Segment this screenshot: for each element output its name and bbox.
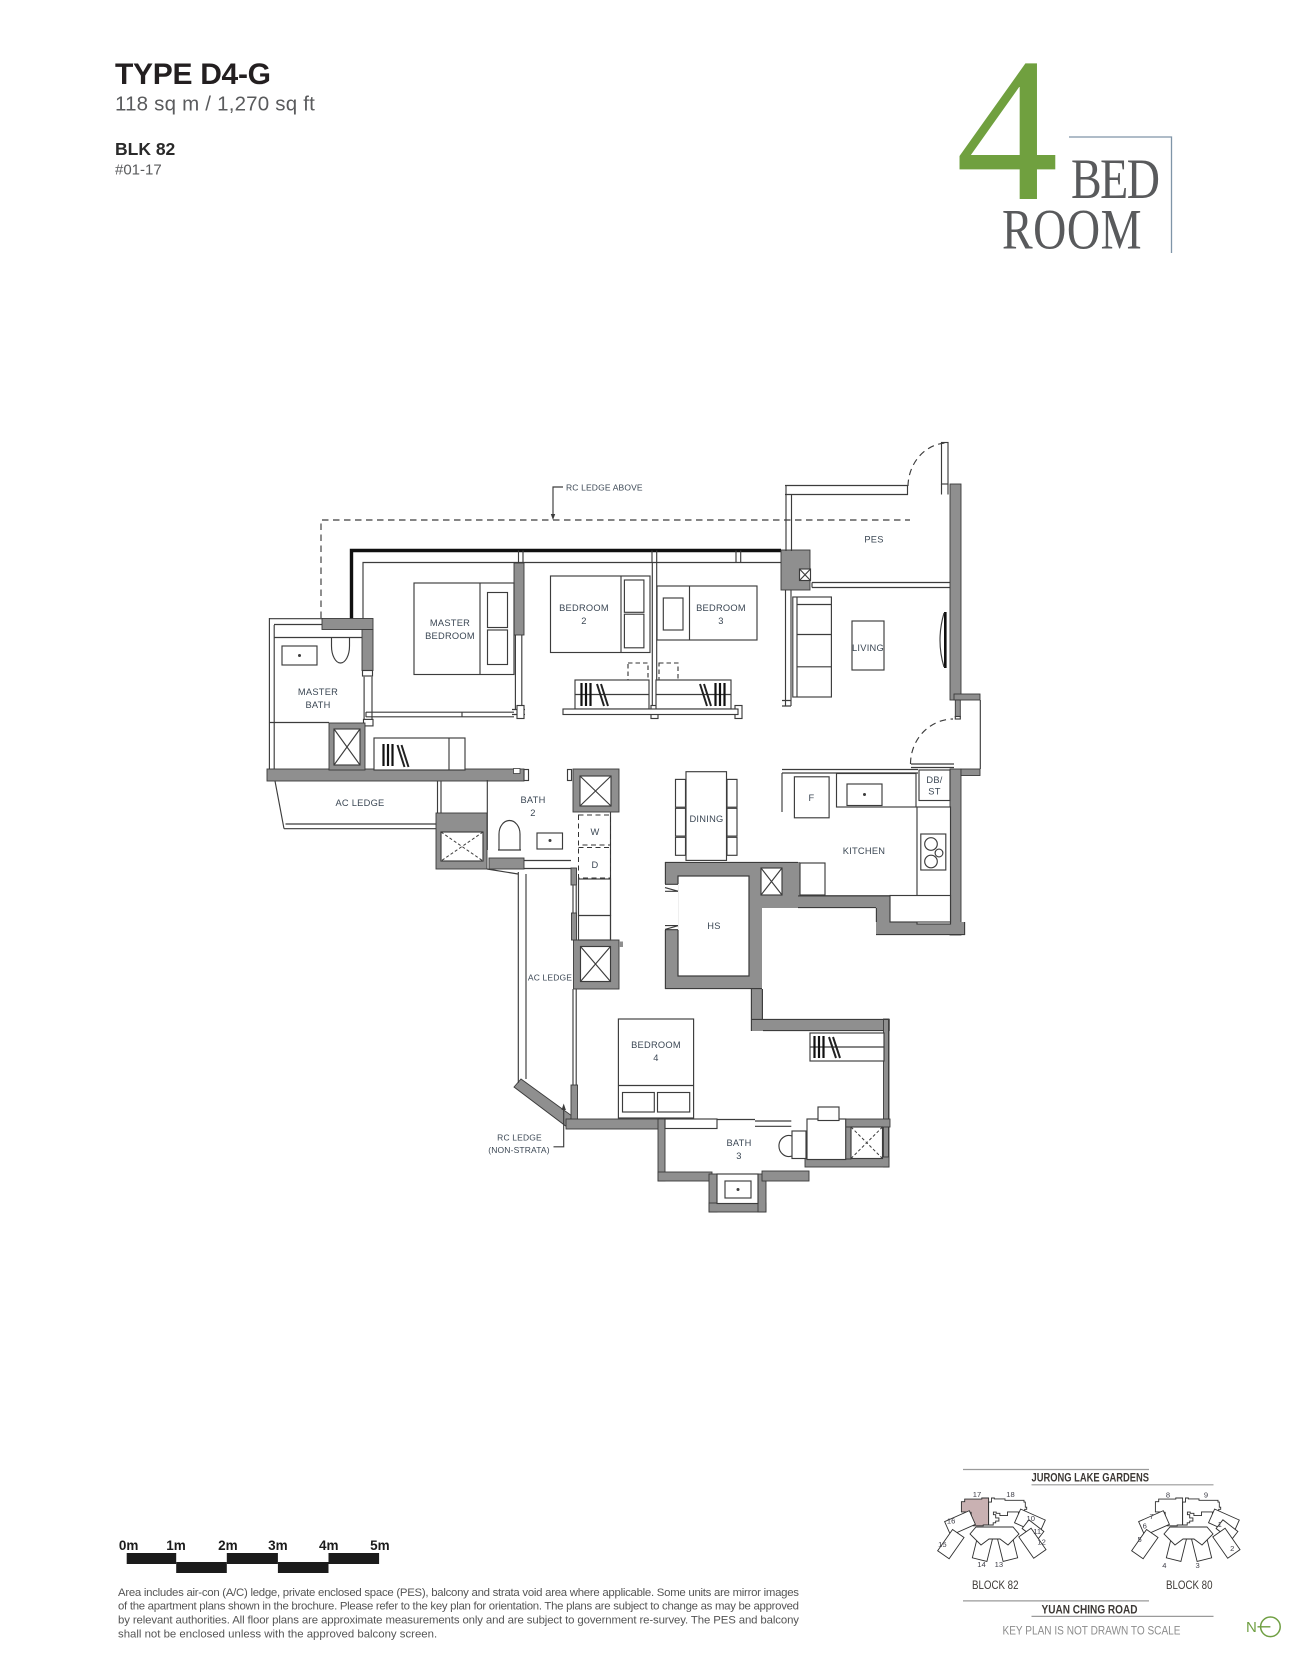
svg-text:2: 2	[581, 616, 586, 626]
svg-text:RC LEDGE: RC LEDGE	[497, 1133, 542, 1143]
svg-text:BEDROOM: BEDROOM	[631, 1040, 681, 1050]
svg-text:BLOCK 80: BLOCK 80	[1166, 1578, 1213, 1592]
svg-text:4m: 4m	[319, 1538, 339, 1553]
svg-text:KITCHEN: KITCHEN	[843, 846, 886, 856]
svg-text:BATH: BATH	[520, 795, 545, 805]
svg-text:DINING: DINING	[689, 814, 723, 824]
svg-text:4: 4	[653, 1053, 658, 1063]
svg-text:18: 18	[1006, 1490, 1014, 1499]
svg-text:RC LEDGE ABOVE: RC LEDGE ABOVE	[566, 483, 643, 493]
svg-text:PES: PES	[864, 535, 883, 545]
svg-text:Area includes air-con (A/C) le: Area includes air-con (A/C) ledge, priva…	[118, 1587, 799, 1599]
svg-text:BLK 82: BLK 82	[115, 139, 176, 159]
svg-text:3: 3	[718, 616, 723, 626]
svg-text:JURONG LAKE GARDENS: JURONG LAKE GARDENS	[1032, 1472, 1150, 1484]
svg-text:5: 5	[1137, 1535, 1141, 1544]
svg-text:by relevant authorities. All f: by relevant authorities. All floor plans…	[118, 1615, 799, 1627]
svg-text:11: 11	[1033, 1527, 1041, 1536]
svg-text:13: 13	[995, 1560, 1003, 1569]
svg-text:2: 2	[530, 808, 535, 818]
svg-text:17: 17	[973, 1490, 981, 1499]
svg-text:12: 12	[1037, 1538, 1045, 1547]
svg-text:0m: 0m	[119, 1538, 139, 1553]
svg-text:14: 14	[977, 1560, 985, 1569]
svg-text:10: 10	[1026, 1514, 1034, 1523]
svg-text:3: 3	[736, 1151, 741, 1161]
svg-text:ST: ST	[928, 787, 940, 797]
svg-text:W: W	[590, 827, 599, 837]
svg-text:118 sq m / 1,270 sq ft: 118 sq m / 1,270 sq ft	[115, 93, 315, 116]
svg-text:5m: 5m	[370, 1538, 390, 1553]
svg-text:KEY PLAN IS NOT DRAWN TO SCALE: KEY PLAN IS NOT DRAWN TO SCALE	[1003, 1624, 1181, 1638]
svg-text:of the apartment plans shown i: of the apartment plans shown in the broc…	[118, 1601, 799, 1613]
svg-text:LIVING: LIVING	[852, 643, 884, 653]
svg-text:#01-17: #01-17	[115, 162, 162, 179]
svg-text:7: 7	[1149, 1512, 1153, 1521]
svg-text:BATH: BATH	[726, 1138, 751, 1148]
svg-text:3: 3	[1195, 1561, 1199, 1570]
svg-text:2: 2	[1230, 1544, 1234, 1553]
svg-text:AC LEDGE: AC LEDGE	[528, 973, 572, 983]
svg-text:1m: 1m	[166, 1538, 186, 1553]
svg-text:BEDROOM: BEDROOM	[425, 631, 475, 641]
svg-text:6: 6	[1143, 1522, 1147, 1531]
svg-text:3m: 3m	[268, 1538, 288, 1553]
svg-text:D: D	[592, 860, 599, 870]
svg-text:HS: HS	[707, 921, 720, 931]
svg-text:F: F	[809, 793, 815, 803]
svg-text:shall not be enclosed unless w: shall not be enclosed unless with the ap…	[118, 1629, 437, 1641]
svg-text:8: 8	[1166, 1491, 1170, 1500]
svg-text:BATH: BATH	[305, 700, 330, 710]
svg-text:2m: 2m	[218, 1538, 238, 1553]
svg-text:DB/: DB/	[926, 775, 942, 785]
svg-text:15: 15	[938, 1540, 946, 1549]
svg-text:BEDROOM: BEDROOM	[696, 603, 746, 613]
svg-text:9: 9	[1204, 1491, 1208, 1500]
svg-text:BEDROOM: BEDROOM	[559, 603, 609, 613]
svg-text:16: 16	[947, 1517, 955, 1526]
svg-text:4: 4	[1162, 1561, 1166, 1570]
svg-text:AC LEDGE: AC LEDGE	[335, 798, 384, 808]
svg-text:(NON-STRATA): (NON-STRATA)	[488, 1145, 549, 1155]
svg-text:TYPE D4-G: TYPE D4-G	[115, 58, 271, 91]
svg-text:ROOM: ROOM	[1002, 199, 1142, 262]
svg-text:YUAN CHING ROAD: YUAN CHING ROAD	[1042, 1605, 1138, 1617]
svg-text:1: 1	[1218, 1520, 1222, 1529]
svg-text:MASTER: MASTER	[430, 618, 470, 628]
svg-text:BLOCK 82: BLOCK 82	[972, 1578, 1019, 1592]
svg-text:MASTER: MASTER	[298, 687, 338, 697]
svg-text:N: N	[1246, 1619, 1257, 1636]
